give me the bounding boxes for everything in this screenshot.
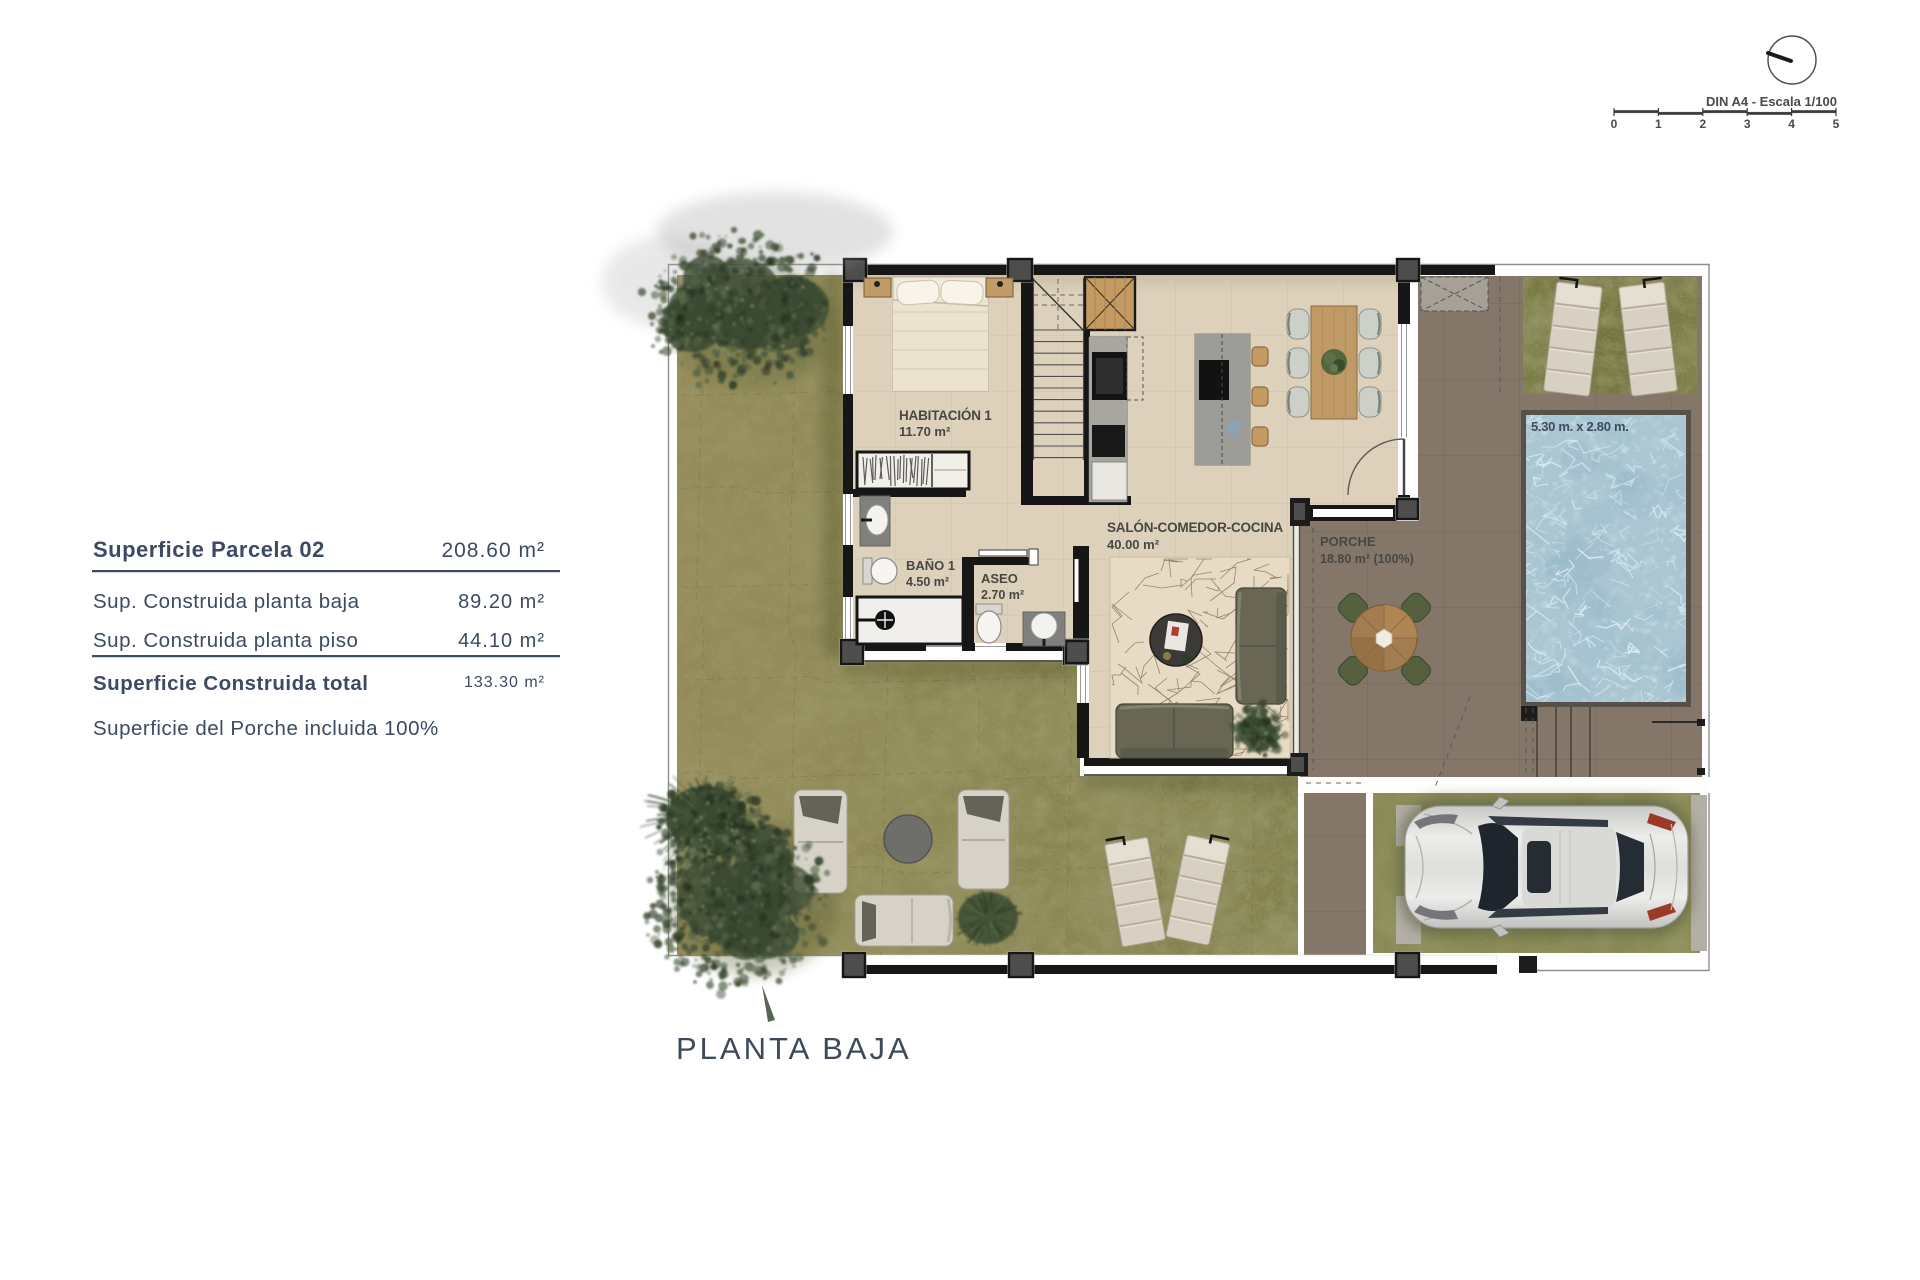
svg-text:4.50 m²: 4.50 m² bbox=[906, 575, 949, 589]
svg-text:Sup. Construida planta baja: Sup. Construida planta baja bbox=[93, 590, 360, 613]
svg-text:40.00 m²: 40.00 m² bbox=[1107, 537, 1160, 552]
svg-text:0: 0 bbox=[1611, 117, 1618, 131]
svg-text:4: 4 bbox=[1788, 117, 1795, 131]
svg-text:Superficie Parcela 02: Superficie Parcela 02 bbox=[93, 537, 325, 562]
svg-text:Superficie Construida total: Superficie Construida total bbox=[93, 672, 368, 695]
svg-text:ASEO: ASEO bbox=[981, 571, 1018, 586]
svg-text:BAÑO 1: BAÑO 1 bbox=[906, 558, 955, 573]
svg-text:HABITACIÓN 1: HABITACIÓN 1 bbox=[899, 408, 992, 423]
svg-text:PLANTA BAJA: PLANTA BAJA bbox=[676, 1031, 912, 1066]
svg-text:1: 1 bbox=[1655, 117, 1662, 131]
svg-text:89.20 m²: 89.20 m² bbox=[458, 591, 545, 613]
svg-text:133.30 m²: 133.30 m² bbox=[464, 674, 545, 691]
svg-text:18.80 m² (100%): 18.80 m² (100%) bbox=[1320, 552, 1414, 566]
svg-text:44.10 m²: 44.10 m² bbox=[458, 630, 545, 652]
svg-text:208.60 m²: 208.60 m² bbox=[441, 539, 545, 562]
svg-text:PORCHE: PORCHE bbox=[1320, 534, 1376, 549]
svg-text:5.30 m. x 2.80 m.: 5.30 m. x 2.80 m. bbox=[1531, 419, 1629, 434]
svg-text:2.70 m²: 2.70 m² bbox=[981, 588, 1024, 602]
svg-text:11.70 m²: 11.70 m² bbox=[899, 424, 951, 439]
svg-text:2: 2 bbox=[1699, 117, 1706, 131]
svg-text:Sup. Construida planta piso: Sup. Construida planta piso bbox=[93, 629, 358, 652]
svg-text:5: 5 bbox=[1833, 117, 1840, 131]
svg-text:3: 3 bbox=[1744, 117, 1751, 131]
svg-text:Superficie del Porche incluida: Superficie del Porche incluida 100% bbox=[93, 717, 439, 740]
svg-text:SALÓN-COMEDOR-COCINA: SALÓN-COMEDOR-COCINA bbox=[1107, 520, 1283, 535]
svg-text:DIN A4 - Escala 1/100: DIN A4 - Escala 1/100 bbox=[1706, 94, 1837, 109]
